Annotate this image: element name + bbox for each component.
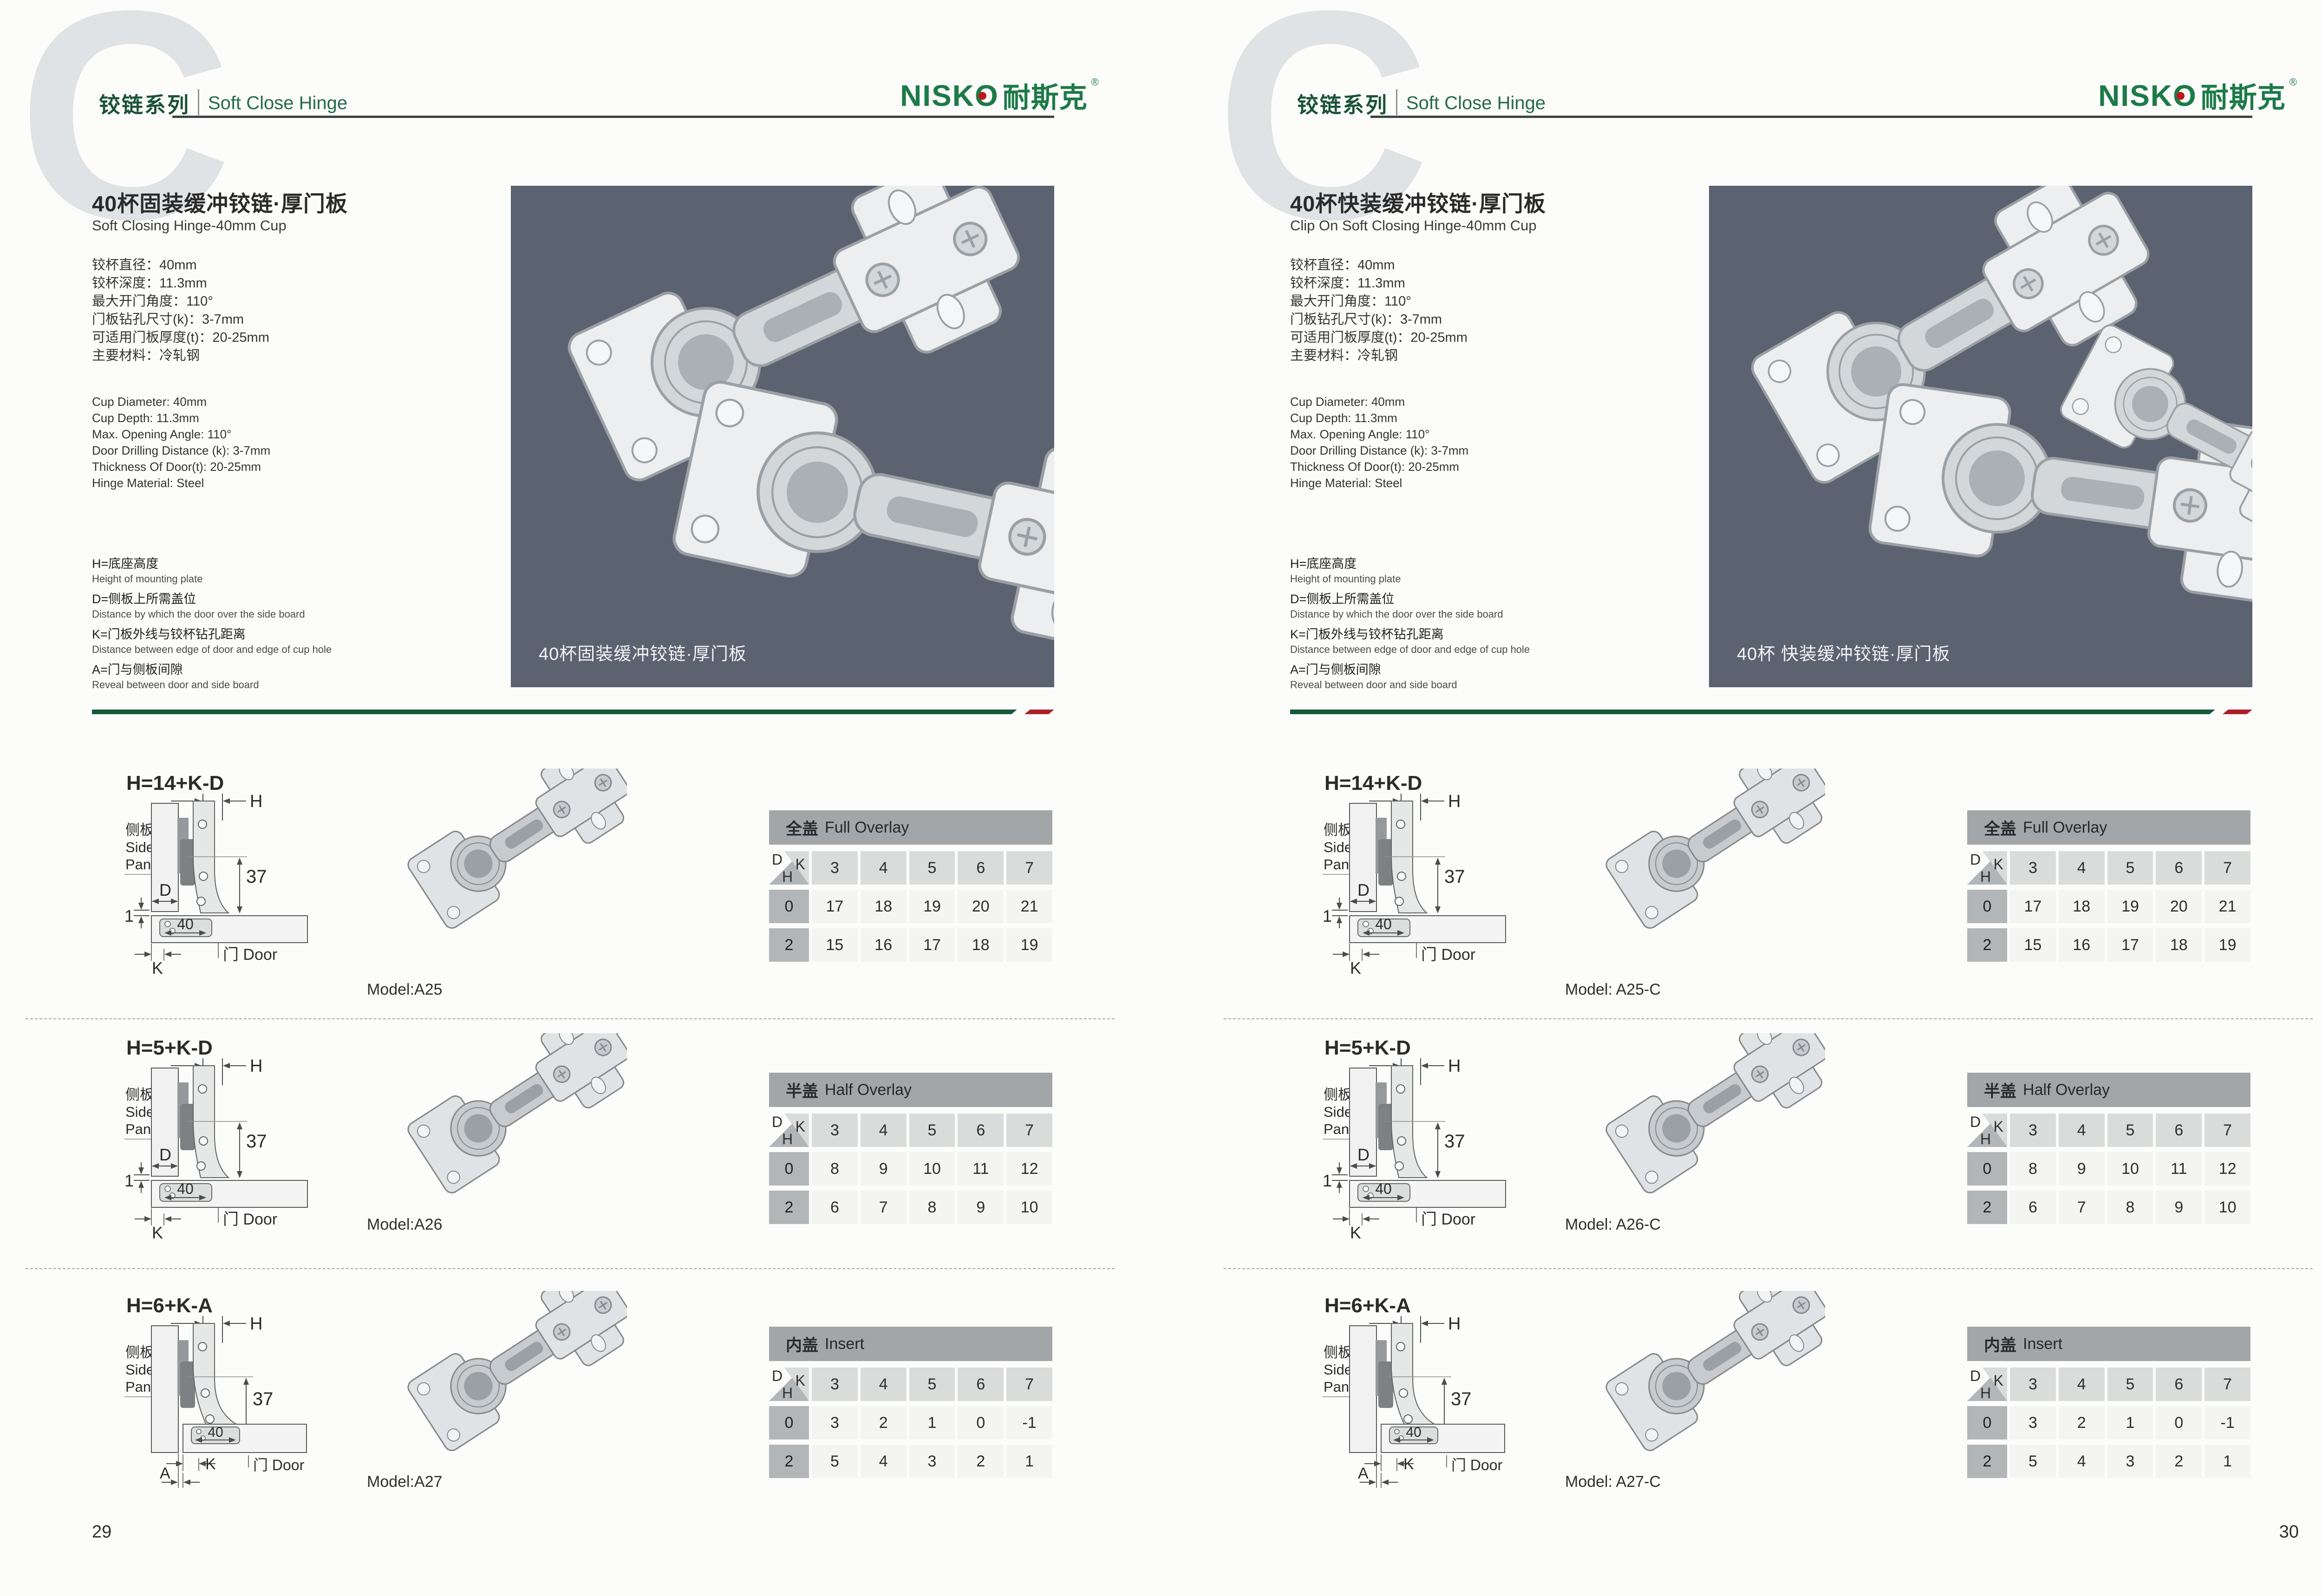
svg-text:门 Door: 门 Door — [1421, 946, 1475, 964]
table-cell: -1 — [1006, 1406, 1052, 1440]
legend-en: Height of mounting plate — [92, 573, 332, 585]
svg-text:A: A — [1358, 1465, 1369, 1482]
svg-text:37: 37 — [1444, 1131, 1465, 1152]
specs-en: Cup Diameter: 40mmCup Depth: 11.3mmMax. … — [1290, 394, 1468, 491]
table-cell: 17 — [2107, 928, 2153, 962]
table-row: 01718192021 — [1967, 890, 2250, 923]
svg-text:H=6+K-A: H=6+K-A — [1324, 1294, 1411, 1317]
table-cell: 18 — [958, 928, 1004, 962]
table-col-header: 5 — [909, 1368, 955, 1401]
table-cell: 2 — [2156, 1445, 2202, 1478]
table-row-label: 2 — [1967, 1191, 2007, 1224]
table-col-header: 6 — [2156, 851, 2202, 885]
table-row: 254321 — [769, 1445, 1052, 1478]
table-cell: 20 — [2156, 890, 2202, 923]
table-col-header: 7 — [2205, 1368, 2250, 1401]
hinge-illustration — [670, 373, 1054, 659]
svg-text:侧板: 侧板 — [1324, 1087, 1352, 1103]
svg-text:1: 1 — [1323, 1171, 1332, 1190]
svg-text:K: K — [1403, 1455, 1414, 1473]
table-cell: 16 — [2059, 928, 2105, 962]
svg-text:K: K — [1350, 958, 1361, 977]
svg-text:D: D — [159, 1145, 171, 1164]
table-cell: 9 — [2156, 1191, 2202, 1224]
spec-line: 可适用门板厚度(t)：20-25mm — [92, 329, 269, 347]
section-dashed-divider — [1224, 1018, 2313, 1019]
table-cell: 11 — [2156, 1152, 2202, 1186]
legend-zh: H=底座高度 — [1290, 556, 1530, 571]
table-cell: 5 — [2010, 1445, 2056, 1478]
table-cell: 10 — [909, 1152, 955, 1186]
diagram-block: H=14+K-DH侧板SidePanel37D140K门 Door — [1305, 759, 1565, 991]
catalog-page-left: C 铰链系列 Soft Close Hinge NISKO 耐斯克 ® 40杯固… — [0, 0, 1138, 1596]
svg-text:D: D — [1357, 880, 1370, 899]
svg-text:40: 40 — [1406, 1425, 1421, 1440]
table-col-header: 7 — [1006, 1368, 1052, 1401]
svg-text:40: 40 — [177, 916, 194, 932]
installation-diagram: H=14+K-DH侧板SidePanel37D140K门 Door — [107, 759, 367, 991]
spec-line: 铰杯直径：40mm — [1290, 256, 1468, 274]
legend-en: Distance between edge of door and edge o… — [92, 644, 332, 656]
divider-green-bar — [1290, 710, 2215, 714]
hinge-illustration — [1602, 1033, 1825, 1198]
svg-text:H=6+K-A: H=6+K-A — [126, 1294, 213, 1317]
svg-text:K: K — [1350, 1223, 1361, 1242]
svg-text:H: H — [250, 1056, 262, 1076]
table-row-label: 0 — [769, 1406, 809, 1440]
table-col-header: 3 — [2010, 851, 2056, 885]
table-corner-cell: DKH — [1967, 1114, 2007, 1147]
diagram-block: H=5+K-DH侧板SidePanel37D140K门 Door — [107, 1024, 367, 1256]
spec-line: Door Drilling Distance (k): 3-7mm — [92, 443, 270, 459]
table-cell: 3 — [812, 1406, 858, 1440]
svg-text:Side: Side — [125, 1104, 154, 1120]
table-cell: 1 — [2205, 1445, 2250, 1478]
table-cell: 12 — [1006, 1152, 1052, 1186]
legend-en: Distance by which the door over the side… — [1290, 608, 1530, 620]
table-row-label: 2 — [1967, 1445, 2007, 1478]
table-cell: 17 — [2010, 890, 2056, 923]
legend-zh: D=侧板上所需盖位 — [92, 592, 332, 606]
table-row-label: 2 — [1967, 928, 2007, 962]
table-cell: 15 — [812, 928, 858, 962]
table-corner-cell: DKH — [1967, 1368, 2007, 1401]
svg-text:K: K — [152, 958, 163, 977]
page-number: 30 — [2260, 1522, 2299, 1542]
header-rule — [172, 116, 1054, 118]
table-cell: 1 — [909, 1406, 955, 1440]
table-header-row: DKH34567 — [1967, 1368, 2250, 1401]
header-rule — [1370, 116, 2252, 118]
spec-line: Door Drilling Distance (k): 3-7mm — [1290, 443, 1468, 459]
legend-zh: K=门板外线与铰杯钻孔距离 — [92, 627, 332, 642]
svg-text:37: 37 — [246, 1131, 267, 1152]
svg-text:H: H — [1448, 1314, 1461, 1334]
svg-text:40: 40 — [177, 1180, 194, 1197]
table-cell: 1 — [1006, 1445, 1052, 1478]
table-cell: 7 — [2059, 1191, 2105, 1224]
legend-zh: D=侧板上所需盖位 — [1290, 592, 1530, 606]
table-row: 254321 — [1967, 1445, 2250, 1478]
header-divider — [1396, 89, 1397, 115]
table-cell: 4 — [2059, 1445, 2105, 1478]
svg-text:H: H — [1448, 792, 1461, 811]
svg-text:H: H — [250, 792, 262, 811]
spec-line: Thickness Of Door(t): 20-25mm — [1290, 459, 1468, 475]
table-cell: 2 — [958, 1445, 1004, 1478]
section-dashed-divider — [1224, 1268, 2313, 1269]
table-cell: 6 — [812, 1191, 858, 1224]
table-row: 2678910 — [769, 1191, 1052, 1224]
table-cell: 19 — [2205, 928, 2250, 962]
table-cell: -1 — [2205, 1406, 2250, 1440]
series-title-en: Soft Close Hinge — [208, 93, 347, 114]
svg-text:H=14+K-D: H=14+K-D — [1324, 772, 1422, 795]
table-title: 半盖Half Overlay — [1967, 1073, 2250, 1107]
svg-text:H=5+K-D: H=5+K-D — [126, 1036, 213, 1059]
table-col-header: 5 — [909, 1114, 955, 1147]
table-col-header: 7 — [2205, 851, 2250, 885]
svg-text:1: 1 — [124, 1171, 134, 1190]
table-cell: 2 — [2059, 1406, 2105, 1440]
table-row-label: 0 — [769, 890, 809, 923]
table-col-header: 3 — [812, 851, 858, 885]
table-cell: 9 — [2059, 1152, 2105, 1186]
table-cell: 20 — [958, 890, 1004, 923]
spec-line: Cup Diameter: 40mm — [1290, 394, 1468, 410]
table-col-header: 5 — [2107, 1368, 2153, 1401]
table-row: 21516171819 — [769, 928, 1052, 962]
installation-diagram: H=5+K-DH侧板SidePanel37D140K门 Door — [107, 1024, 367, 1256]
table-corner-cell: DKH — [1967, 851, 2007, 885]
catalog-page-right: C 铰链系列 Soft Close Hinge NISKO 耐斯克 ® 40杯快… — [1198, 0, 2322, 1596]
series-title-en: Soft Close Hinge — [1406, 93, 1546, 114]
product-title-en: Clip On Soft Closing Hinge-40mm Cup — [1290, 217, 1537, 234]
table-cell: 6 — [2010, 1191, 2056, 1224]
header-divider — [198, 89, 199, 115]
product-photo-caption: 40杯固装缓冲铰链·厚门板 — [539, 639, 747, 665]
overlay-table: 内盖Insert DKH3456703210-1254321 — [769, 1327, 1052, 1483]
divider-green-bar — [92, 710, 1017, 714]
hinge-photo — [385, 1033, 627, 1233]
spec-line: Cup Depth: 11.3mm — [1290, 410, 1468, 426]
product-photo-art — [1709, 186, 2252, 687]
spec-line: Max. Opening Angle: 110° — [92, 426, 270, 443]
table-cell: 3 — [909, 1445, 955, 1478]
svg-text:H: H — [1448, 1056, 1461, 1076]
hinge-illustration — [1602, 769, 1825, 933]
table-cell: 19 — [2107, 890, 2153, 923]
overlay-table: 内盖Insert DKH3456703210-1254321 — [1967, 1327, 2250, 1483]
table-row-label: 0 — [1967, 890, 2007, 923]
table-row-label: 2 — [769, 928, 809, 962]
hinge-illustration — [404, 769, 627, 933]
table-cell: 10 — [2205, 1191, 2250, 1224]
table-cell: 3 — [2010, 1406, 2056, 1440]
hinge-illustration — [1602, 1291, 1825, 1456]
svg-text:门 Door: 门 Door — [253, 1457, 305, 1473]
spec-line: 门板钻孔尺寸(k)：3-7mm — [1290, 311, 1468, 329]
svg-text:A: A — [160, 1465, 170, 1482]
section-dashed-divider — [26, 1268, 1115, 1269]
legend-en: Height of mounting plate — [1290, 573, 1530, 585]
table-cell: 9 — [958, 1191, 1004, 1224]
table-col-header: 6 — [958, 851, 1004, 885]
specs-zh: 铰杯直径：40mm铰杯深度：11.3mm最大开门角度：110°门板钻孔尺寸(k)… — [1290, 256, 1468, 365]
section-dashed-divider — [26, 1018, 1115, 1019]
legend-en: Reveal between door and side board — [1290, 679, 1530, 691]
table-cell: 16 — [861, 928, 907, 962]
table-col-header: 6 — [2156, 1368, 2202, 1401]
table-col-header: 3 — [812, 1114, 858, 1147]
svg-text:1: 1 — [124, 906, 134, 925]
hinge-photo — [1584, 1291, 1825, 1491]
product-photo: 40杯固装缓冲铰链·厚门板 — [511, 186, 1054, 687]
table-title: 全盖Full Overlay — [1967, 810, 2250, 845]
legend-zh: A=门与侧板间隙 — [92, 662, 332, 677]
svg-text:Side: Side — [125, 1361, 154, 1378]
table-col-header: 3 — [2010, 1368, 2056, 1401]
model-label: Model:A26 — [367, 1216, 443, 1234]
table-cell: 8 — [2107, 1191, 2153, 1224]
svg-text:1: 1 — [1323, 906, 1332, 925]
table-col-header: 4 — [861, 851, 907, 885]
table-col-header: 6 — [958, 1368, 1004, 1401]
overlay-table: 全盖Full Overlay DKH3456701718192021215161… — [769, 810, 1052, 967]
svg-text:Side: Side — [1324, 1361, 1352, 1378]
hinge-photo — [385, 1291, 627, 1491]
product-title-zh: 40杯快装缓冲铰链·厚门板 — [1290, 186, 1546, 218]
table-header-row: DKH34567 — [769, 851, 1052, 885]
svg-text:D: D — [1357, 1145, 1370, 1164]
svg-text:门 Door: 门 Door — [1451, 1457, 1503, 1473]
product-photo-caption: 40杯 快装缓冲铰链·厚门板 — [1737, 639, 1950, 665]
svg-text:侧板: 侧板 — [1324, 822, 1352, 838]
svg-text:40: 40 — [208, 1425, 223, 1440]
table-header-row: DKH34567 — [1967, 851, 2250, 885]
svg-text:门 Door: 门 Door — [223, 1211, 277, 1228]
spec-line: Cup Depth: 11.3mm — [92, 410, 270, 426]
series-title-zh: 铰链系列 — [99, 88, 190, 119]
table-row-label: 0 — [1967, 1406, 2007, 1440]
dimension-legend: H=底座高度Height of mounting plateD=侧板上所需盖位D… — [1290, 556, 1530, 697]
table-title: 全盖Full Overlay — [769, 810, 1052, 845]
table-row: 01718192021 — [769, 890, 1052, 923]
table-cell: 18 — [861, 890, 907, 923]
table-title: 内盖Insert — [1967, 1327, 2250, 1361]
page-number: 29 — [92, 1522, 111, 1542]
svg-text:37: 37 — [1444, 866, 1465, 887]
dimension-legend: H=底座高度Height of mounting plateD=侧板上所需盖位D… — [92, 556, 332, 697]
svg-text:侧板: 侧板 — [125, 1087, 154, 1103]
diagram-block: H=6+K-AH侧板SidePanel3740KA门 Door — [1305, 1282, 1565, 1514]
table-col-header: 5 — [909, 851, 955, 885]
installation-diagram: H=6+K-AH侧板SidePanel3740KA门 Door — [1305, 1282, 1565, 1514]
model-label: Model:A27 — [367, 1473, 443, 1491]
table-cell: 8 — [812, 1152, 858, 1186]
table-cell: 9 — [861, 1152, 907, 1186]
table-cell: 11 — [958, 1152, 1004, 1186]
table-cell: 2 — [861, 1406, 907, 1440]
installation-diagram: H=5+K-DH侧板SidePanel37D140K门 Door — [1305, 1024, 1565, 1256]
svg-text:K: K — [205, 1455, 216, 1473]
table-col-header: 3 — [812, 1368, 858, 1401]
table-cell: 10 — [1006, 1191, 1052, 1224]
table-col-header: 7 — [1006, 851, 1052, 885]
spec-line: Hinge Material: Steel — [92, 475, 270, 491]
table-col-header: 7 — [2205, 1114, 2250, 1147]
product-photo: 40杯 快装缓冲铰链·厚门板 — [1709, 186, 2252, 687]
svg-text:H=14+K-D: H=14+K-D — [126, 772, 224, 795]
table-cell: 15 — [2010, 928, 2056, 962]
svg-text:侧板: 侧板 — [125, 822, 154, 838]
specs-en: Cup Diameter: 40mmCup Depth: 11.3mmMax. … — [92, 394, 270, 491]
spec-line: 可适用门板厚度(t)：20-25mm — [1290, 329, 1468, 347]
brand-logo-latin: NISKO — [2098, 78, 2197, 113]
svg-text:门 Door: 门 Door — [223, 946, 277, 964]
hinge-photo — [385, 769, 627, 968]
svg-text:40: 40 — [1375, 1180, 1392, 1197]
spec-line: 铰杯深度：11.3mm — [1290, 274, 1468, 293]
spec-line: Hinge Material: Steel — [1290, 475, 1468, 491]
table-title: 半盖Half Overlay — [769, 1073, 1052, 1107]
table-cell: 1 — [2107, 1406, 2153, 1440]
table-col-header: 4 — [861, 1368, 907, 1401]
hinge-photo — [1584, 769, 1825, 968]
table-col-header: 4 — [861, 1114, 907, 1147]
table-header-row: DKH34567 — [769, 1114, 1052, 1147]
svg-text:Side: Side — [1324, 839, 1352, 855]
svg-text:H=5+K-D: H=5+K-D — [1324, 1036, 1411, 1059]
table-cell: 7 — [861, 1191, 907, 1224]
table-row: 2678910 — [1967, 1191, 2250, 1224]
svg-text:37: 37 — [246, 866, 267, 887]
brand-logo-zh: 耐斯克 — [2201, 75, 2286, 116]
overlay-table: 半盖Half Overlay DKH345670891011122678910 — [1967, 1073, 2250, 1229]
svg-text:Side: Side — [1324, 1104, 1352, 1120]
hinge-illustration — [404, 1033, 627, 1198]
table-row-label: 0 — [1967, 1152, 2007, 1186]
spec-line: Thickness Of Door(t): 20-25mm — [92, 459, 270, 475]
brand-logo-zh: 耐斯克 — [1003, 75, 1088, 116]
spec-line: 门板钻孔尺寸(k)：3-7mm — [92, 311, 269, 329]
svg-text:37: 37 — [1451, 1389, 1472, 1409]
model-label: Model: A27-C — [1565, 1473, 1661, 1491]
svg-text:40: 40 — [1375, 916, 1392, 932]
legend-en: Reveal between door and side board — [92, 679, 332, 691]
table-col-header: 6 — [2156, 1114, 2202, 1147]
overlay-table: 半盖Half Overlay DKH345670891011122678910 — [769, 1073, 1052, 1229]
svg-text:侧板: 侧板 — [125, 1344, 154, 1361]
legend-zh: A=门与侧板间隙 — [1290, 662, 1530, 677]
divider-red-bar — [2223, 710, 2252, 714]
table-col-header: 4 — [2059, 1114, 2105, 1147]
diagram-block: H=5+K-DH侧板SidePanel37D140K门 Door — [1305, 1024, 1565, 1256]
divider-red-bar — [1024, 710, 1054, 714]
table-row: 03210-1 — [1967, 1406, 2250, 1440]
model-label: Model: A25-C — [1565, 981, 1661, 999]
table-col-header: 5 — [2107, 851, 2153, 885]
table-cell: 18 — [2156, 928, 2202, 962]
spec-line: 最大开门角度：110° — [1290, 293, 1468, 311]
table-col-header: 6 — [958, 1114, 1004, 1147]
product-title-en: Soft Closing Hinge-40mm Cup — [92, 217, 287, 234]
table-cell: 21 — [1006, 890, 1052, 923]
table-row: 03210-1 — [769, 1406, 1052, 1440]
legend-en: Distance between edge of door and edge o… — [1290, 644, 1530, 656]
table-cell: 17 — [812, 890, 858, 923]
table-cell: 8 — [2010, 1152, 2056, 1186]
spec-line: 主要材料：冷轧钢 — [92, 347, 269, 365]
registered-mark: ® — [1091, 76, 1099, 88]
table-cell: 10 — [2107, 1152, 2153, 1186]
table-cell: 4 — [861, 1445, 907, 1478]
diagram-block: H=6+K-AH侧板SidePanel3740KA门 Door — [107, 1282, 367, 1514]
table-header-row: DKH34567 — [769, 1368, 1052, 1401]
legend-zh: K=门板外线与铰杯钻孔距离 — [1290, 627, 1530, 642]
table-corner-cell: DKH — [769, 851, 809, 885]
brand-logo-latin: NISKO — [900, 78, 999, 113]
svg-text:37: 37 — [253, 1389, 274, 1409]
table-cell: 3 — [2107, 1445, 2153, 1478]
table-cell: 8 — [909, 1191, 955, 1224]
table-col-header: 4 — [2059, 851, 2105, 885]
registered-mark: ® — [2289, 76, 2297, 88]
svg-text:H: H — [250, 1314, 262, 1334]
table-cell: 17 — [909, 928, 955, 962]
table-cell: 5 — [812, 1445, 858, 1478]
table-cell: 21 — [2205, 890, 2250, 923]
table-cell: 12 — [2205, 1152, 2250, 1186]
table-row-label: 0 — [769, 1152, 809, 1186]
spec-line: 主要材料：冷轧钢 — [1290, 347, 1468, 365]
spec-line: 最大开门角度：110° — [92, 293, 269, 311]
brand-logo: NISKO 耐斯克 ® — [2094, 75, 2297, 116]
product-photo-art — [511, 186, 1054, 687]
spec-line: 铰杯深度：11.3mm — [92, 274, 269, 293]
table-row-label: 2 — [769, 1191, 809, 1224]
spec-line: Cup Diameter: 40mm — [92, 394, 270, 410]
table-cell: 19 — [909, 890, 955, 923]
table-cell: 0 — [2156, 1406, 2202, 1440]
specs-zh: 铰杯直径：40mm铰杯深度：11.3mm最大开门角度：110°门板钻孔尺寸(k)… — [92, 256, 269, 365]
table-col-header: 4 — [2059, 1368, 2105, 1401]
table-row: 089101112 — [769, 1152, 1052, 1186]
table-row: 21516171819 — [1967, 928, 2250, 962]
table-header-row: DKH34567 — [1967, 1114, 2250, 1147]
table-col-header: 3 — [2010, 1114, 2056, 1147]
installation-diagram: H=14+K-DH侧板SidePanel37D140K门 Door — [1305, 759, 1565, 991]
model-label: Model:A25 — [367, 981, 443, 999]
table-col-header: 7 — [1006, 1114, 1052, 1147]
table-row-label: 2 — [769, 1445, 809, 1478]
legend-en: Distance by which the door over the side… — [92, 608, 332, 620]
product-title-zh: 40杯固装缓冲铰链·厚门板 — [92, 186, 348, 218]
svg-text:K: K — [152, 1223, 163, 1242]
table-cell: 18 — [2059, 890, 2105, 923]
svg-text:Side: Side — [125, 839, 154, 855]
hinge-photo — [1584, 1033, 1825, 1233]
spec-line: 铰杯直径：40mm — [92, 256, 269, 274]
model-label: Model: A26-C — [1565, 1216, 1661, 1234]
installation-diagram: H=6+K-AH侧板SidePanel3740KA门 Door — [107, 1282, 367, 1514]
table-corner-cell: DKH — [769, 1114, 809, 1147]
table-row: 089101112 — [1967, 1152, 2250, 1186]
series-title-zh: 铰链系列 — [1297, 88, 1388, 119]
table-cell: 0 — [958, 1406, 1004, 1440]
table-cell: 19 — [1006, 928, 1052, 962]
svg-text:侧板: 侧板 — [1324, 1344, 1352, 1361]
